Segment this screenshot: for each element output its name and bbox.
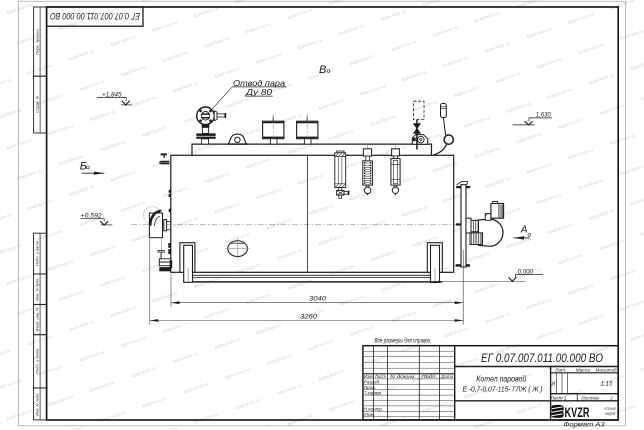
svg-text:Лист 1: Лист 1 (549, 396, 567, 402)
svg-text:Б: Б (80, 161, 87, 173)
svg-text:0,000: 0,000 (518, 269, 534, 276)
svg-text:Е -0,7-0,07-115- ГЛЖ ( Ж ): Е -0,7-0,07-115- ГЛЖ ( Ж ) (463, 385, 543, 394)
svg-text:Ду 80: Ду 80 (245, 87, 273, 97)
svg-text:Разраб.: Разраб. (364, 380, 381, 385)
svg-text:Перв. примен.: Перв. примен. (35, 28, 40, 55)
svg-text:Н.контр.: Н.контр. (364, 407, 383, 412)
svg-text:Дата: Дата (440, 374, 454, 379)
svg-text:Лист: Лист (374, 374, 386, 379)
svg-text:2: 2 (609, 396, 613, 402)
svg-text:Котел паровой: Котел паровой (476, 373, 526, 383)
svg-text:+0,592: +0,592 (81, 212, 102, 219)
svg-text:Подп. и дата: Подп. и дата (35, 240, 40, 266)
svg-text:Изм: Изм (364, 374, 373, 379)
svg-text:N докум.: N докум. (390, 374, 416, 379)
svg-text:+1,845: +1,845 (102, 91, 122, 98)
svg-text:Масштаб: Масштаб (596, 368, 617, 374)
svg-text:ЕГ 0.07.007.011.00.000 ВО: ЕГ 0.07.007.011.00.000 ВО (50, 10, 140, 21)
svg-text:Т.контр.: Т.контр. (364, 391, 383, 396)
svg-text:Масса: Масса (576, 368, 591, 374)
svg-text:3040: 3040 (309, 296, 327, 303)
svg-text:Инв. N дубл.: Инв. N дубл. (35, 278, 40, 301)
svg-text:В: В (319, 64, 326, 76)
svg-text:Подп.: Подп. (421, 374, 437, 379)
svg-text:И: И (551, 382, 555, 388)
svg-text:KVZR: KVZR (565, 405, 590, 420)
svg-text:1,630: 1,630 (536, 112, 551, 119)
svg-text:1:15: 1:15 (601, 382, 613, 388)
svg-text:Инв. N подл.: Инв. N подл. (35, 392, 40, 415)
svg-text:Все размеры для справок.: Все размеры для справок. (375, 336, 432, 344)
svg-text:А: А (520, 225, 528, 236)
svg-text:Пров.: Пров. (364, 385, 376, 390)
svg-text:ЗАВОД РЭП: ЗАВОД РЭП (605, 412, 615, 416)
svg-text:Справ. N: Справ. N (35, 96, 40, 113)
svg-text:ЕГ 0.07.007.011.00.000 ВО: ЕГ 0.07.007.011.00.000 ВО (481, 353, 603, 365)
svg-text:Формат А3: Формат А3 (564, 422, 606, 428)
svg-text:Взам. инв. N: Взам. инв. N (35, 308, 40, 331)
svg-text:3260: 3260 (300, 313, 318, 320)
svg-text:Лит.: Лит. (554, 368, 566, 374)
svg-text:КОТЕЛЬНЫЙ: КОТЕЛЬНЫЙ (605, 407, 616, 411)
svg-text:Подп. и дата: Подп. и дата (35, 348, 40, 374)
svg-text:Утв.: Утв. (364, 412, 374, 417)
svg-text:Листов: Листов (580, 396, 599, 402)
